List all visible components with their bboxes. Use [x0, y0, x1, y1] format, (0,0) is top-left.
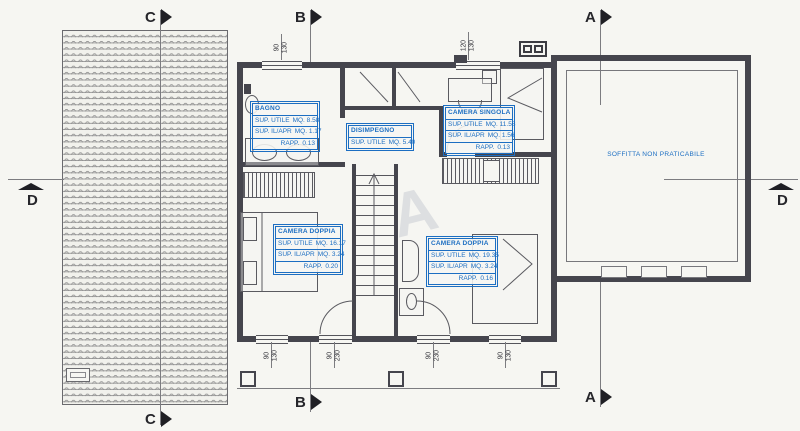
dim-width: 90	[326, 344, 334, 368]
room-data-box-camera-doppia-right: CAMERA DOPPIA SUP. UTILEMQ. 19.35 SUP. I…	[428, 238, 496, 285]
room-row: SUP. IL/APRMQ. 3.24	[429, 262, 495, 274]
dim-bottom-2: 90 230	[326, 344, 341, 368]
room-row: RAPP.0.20	[276, 262, 340, 273]
dim-bottom-1: 90 130	[263, 344, 278, 368]
row-value: MQ. 5.40	[389, 140, 416, 147]
room-row: SUP. UTILEMQ. 11.58	[446, 120, 512, 132]
row-label: RAPP.	[459, 276, 478, 283]
row-value: MQ. 1.17	[295, 129, 322, 136]
dim-width: 90	[425, 344, 433, 368]
room-data-box-disimpegno: DISIMPEGNO SUP. UTILEMQ. 5.40	[348, 125, 412, 149]
closet-door-diagonal-2	[398, 72, 420, 102]
room-row: RAPP.0.16	[429, 274, 495, 285]
row-label: RAPP.	[304, 264, 323, 271]
row-label: SUP. IL/APR	[431, 264, 468, 271]
row-label: SUP. IL/APR	[278, 252, 315, 259]
row-label: SUP. UTILE	[448, 122, 483, 129]
row-label: RAPP.	[281, 141, 300, 148]
dim-bottom-4: 90 130	[497, 344, 512, 368]
row-value: 0.20	[325, 264, 338, 271]
room-title: CAMERA DOPPIA	[276, 227, 340, 239]
stair-direction-arrow	[369, 174, 379, 296]
bed-right-fold	[503, 239, 532, 290]
row-value: MQ. 16.17	[316, 241, 346, 248]
row-value: MQ. 19.35	[469, 253, 499, 260]
room-row: SUP. UTILEMQ. 5.40	[349, 138, 411, 149]
row-label: SUP. IL/APR	[255, 129, 292, 136]
row-value: 0.13	[302, 141, 315, 148]
dim-width: 90	[497, 344, 505, 368]
dim-bottom-3: 90 230	[425, 344, 440, 368]
closet-door-diagonal-1	[360, 72, 388, 102]
room-row: SUP. UTILEMQ. 16.17	[276, 239, 340, 251]
row-label: SUP. UTILE	[431, 253, 466, 260]
room-title: CAMERA SINGOLA	[446, 108, 512, 120]
room-row: SUP. UTILEMQ. 19.35	[429, 251, 495, 263]
dim-top-window-right: 120 130	[460, 34, 475, 58]
row-value: 0.13	[497, 145, 510, 152]
room-data-box-bagno: BAGNO SUP. UTILEMQ. 8.58 SUP. IL/APRMQ. …	[252, 103, 318, 150]
dim-height: 130	[468, 34, 476, 58]
dim-height: 130	[281, 36, 289, 60]
dim-height: 230	[433, 344, 441, 368]
row-value: MQ. 1.56	[488, 133, 515, 140]
room-title: CAMERA DOPPIA	[429, 239, 495, 251]
room-row: SUP. IL/APRMQ. 1.56	[446, 131, 512, 143]
bed-single-fold	[508, 78, 542, 112]
room-title: BAGNO	[253, 104, 317, 116]
dim-width: 90	[273, 36, 281, 60]
row-label: SUP. IL/APR	[448, 133, 485, 140]
row-label: RAPP.	[476, 145, 495, 152]
row-label: SUP. UTILE	[278, 241, 313, 248]
room-data-box-camera-doppia-left: CAMERA DOPPIA SUP. UTILEMQ. 16.17 SUP. I…	[275, 226, 341, 273]
door-arc-right	[417, 301, 450, 334]
dim-height: 130	[505, 344, 513, 368]
dim-top-window-left: 90 130	[273, 36, 288, 60]
row-value: MQ. 3.24	[318, 252, 345, 259]
door-arc-left	[320, 301, 353, 334]
room-row: RAPP.0.13	[253, 139, 317, 150]
row-label: SUP. UTILE	[351, 140, 386, 147]
row-value: MQ. 11.58	[486, 122, 516, 129]
room-data-box-camera-singola: CAMERA SINGOLA SUP. UTILEMQ. 11.58 SUP. …	[445, 107, 513, 154]
room-row: SUP. IL/APRMQ. 1.17	[253, 127, 317, 139]
dim-height: 230	[334, 344, 342, 368]
dim-width: 90	[263, 344, 271, 368]
row-label: SUP. UTILE	[255, 118, 290, 125]
floor-plan-sheet: C B A B A C D D SOFFITTA NON PRATICABILE	[0, 0, 800, 431]
row-value: MQ. 3.24	[471, 264, 498, 271]
room-row: SUP. IL/APRMQ. 3.24	[276, 250, 340, 262]
dim-width: 120	[460, 34, 468, 58]
dim-height: 130	[271, 344, 279, 368]
room-row: RAPP.0.13	[446, 143, 512, 154]
room-title: DISIMPEGNO	[349, 126, 411, 138]
room-row: SUP. UTILEMQ. 8.58	[253, 116, 317, 128]
row-value: MQ. 8.58	[293, 118, 320, 125]
row-value: 0.16	[480, 276, 493, 283]
